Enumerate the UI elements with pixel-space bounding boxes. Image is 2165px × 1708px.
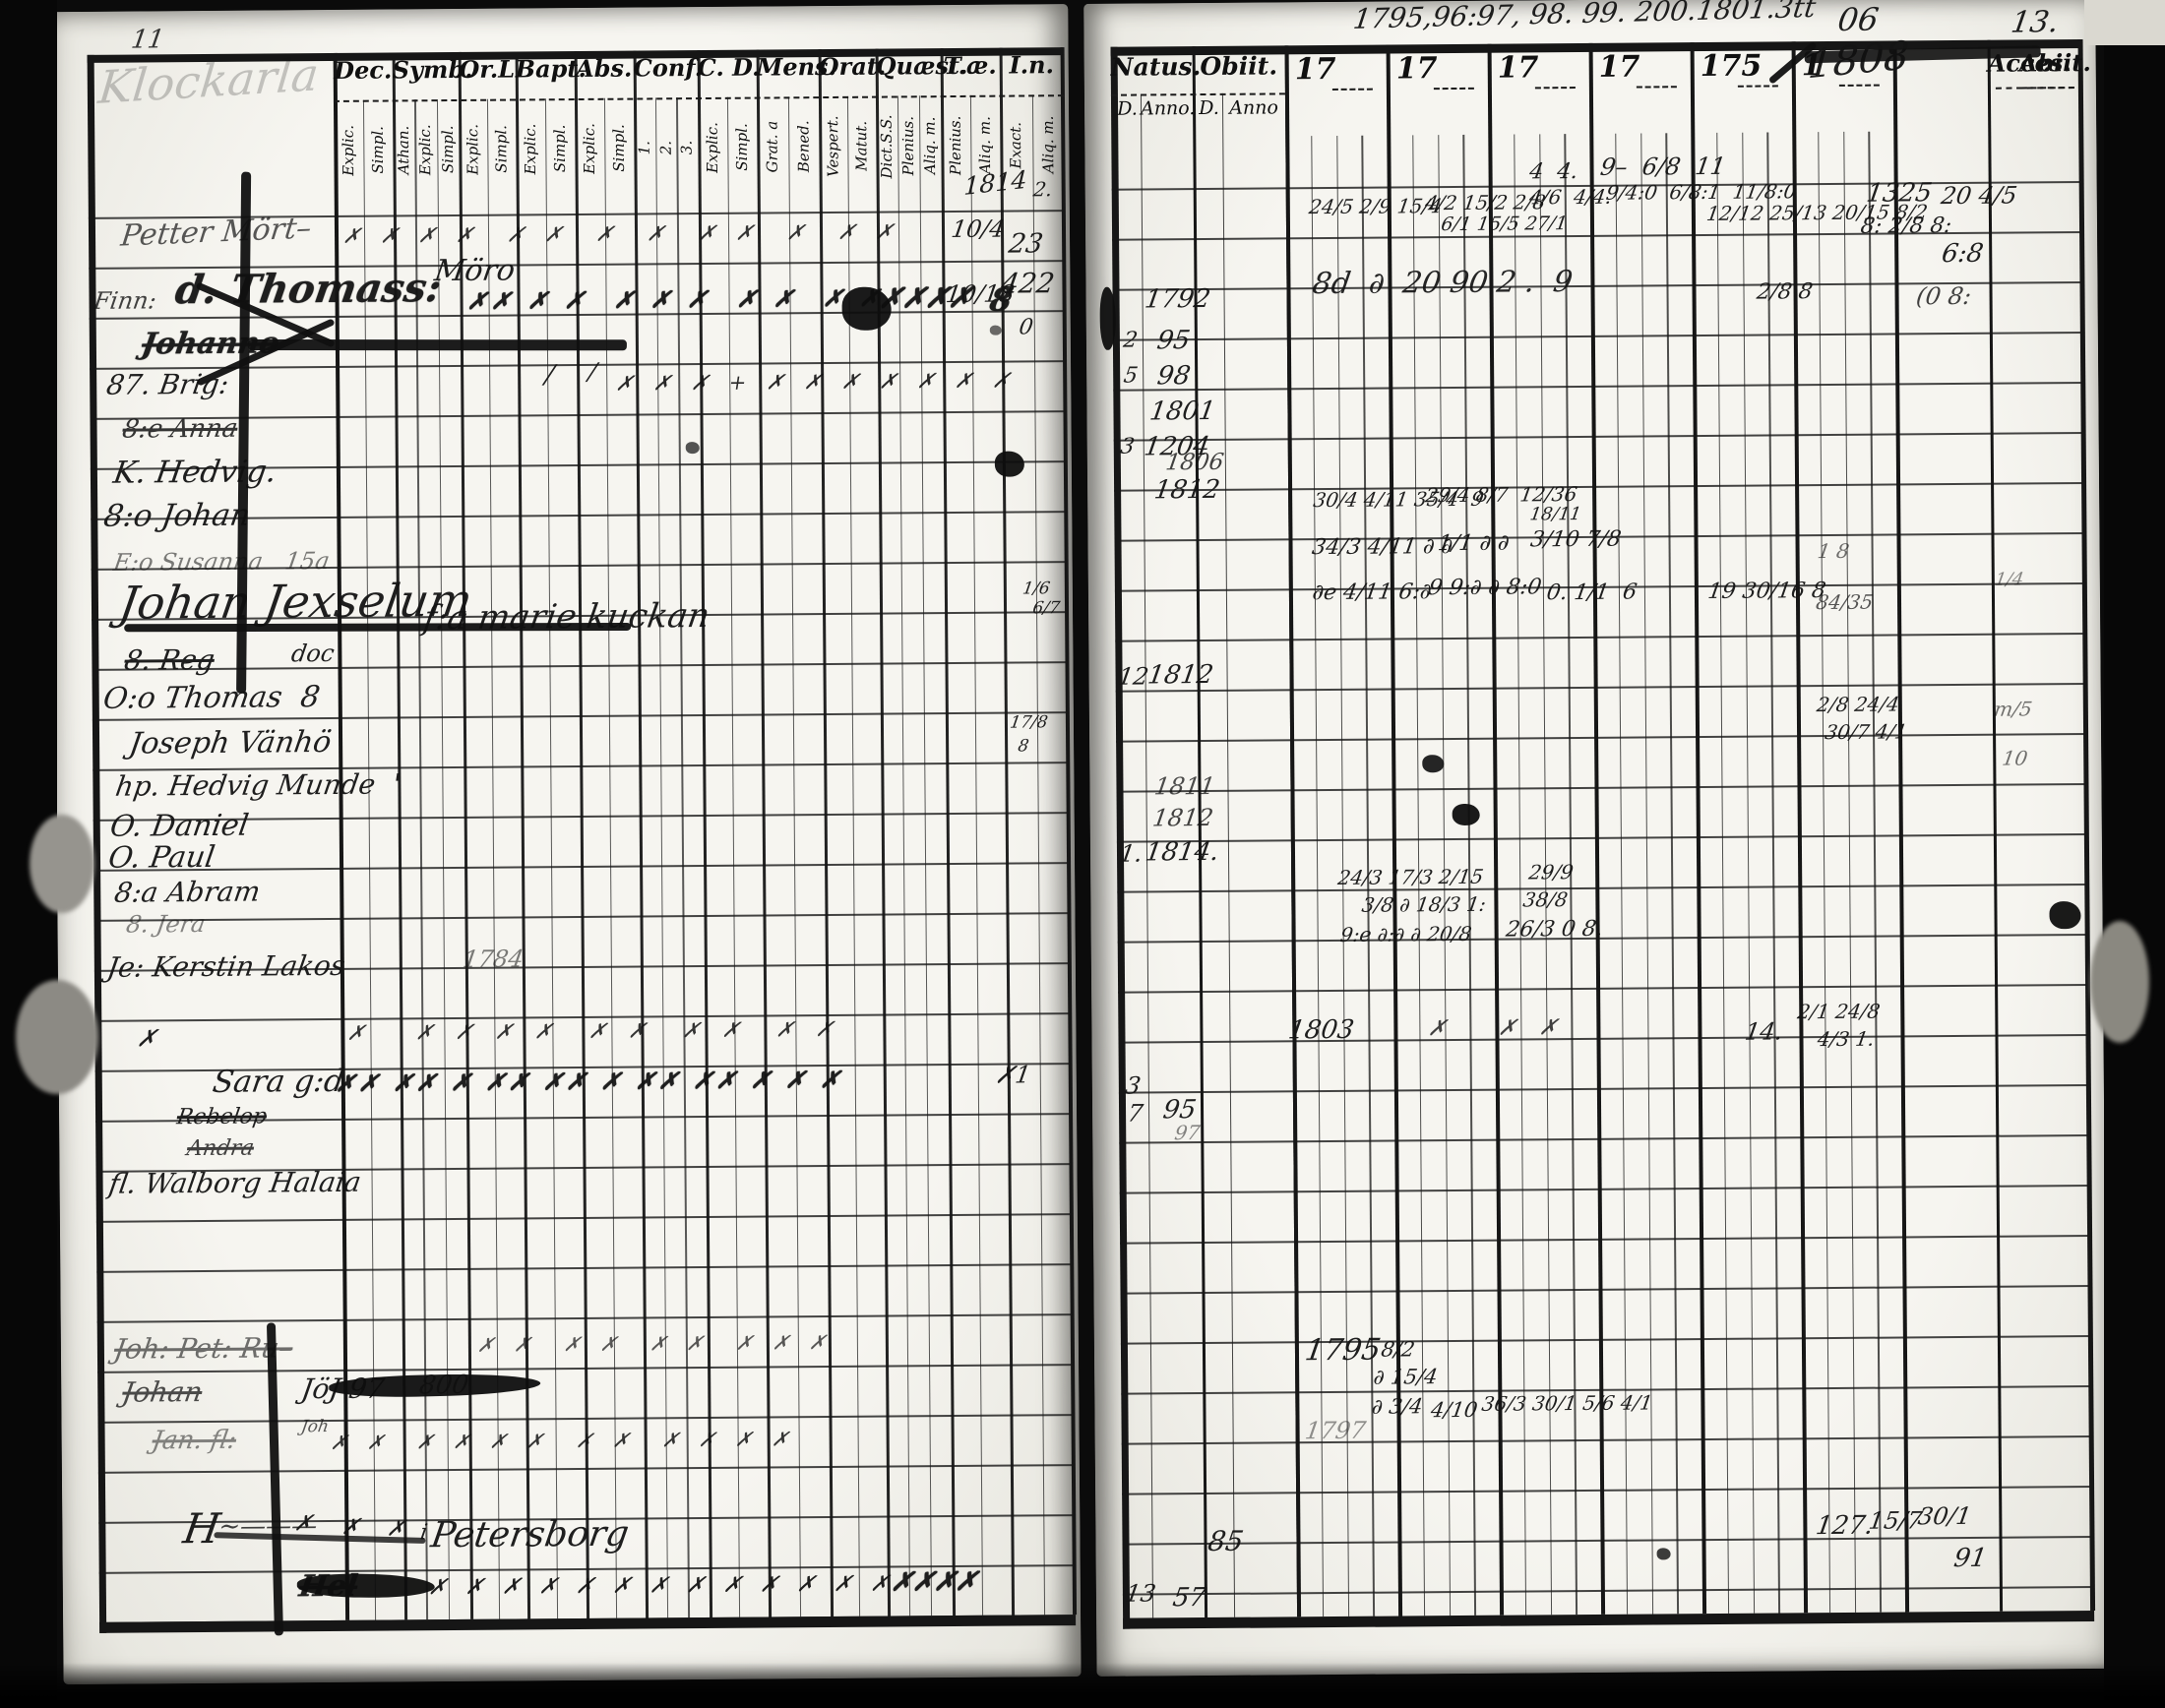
handwritten-entry: 24/3 17/3 2/15 (1336, 867, 1484, 887)
column-header: Bapt. (516, 57, 575, 81)
margin-note: 06 (1835, 4, 1881, 35)
handwritten-entry: Je: Kerstin Lakos (105, 952, 346, 982)
handwritten-entry: 2. (1032, 179, 1054, 199)
handwritten-entry: 38/8 (1521, 889, 1569, 909)
column-header: Symb. (393, 58, 459, 83)
handwritten-entry: Petersborg (429, 1517, 632, 1555)
ink-blot (1453, 804, 1480, 825)
handwritten-entry: O. Paul (106, 843, 216, 874)
handwritten-entry: 8 (1017, 738, 1029, 755)
handwritten-entry: 1811 (1153, 774, 1217, 799)
page-corner (2084, 0, 2165, 45)
column-subheader: Vespert. (819, 100, 848, 193)
handwritten-entry: 1797 (1304, 1419, 1368, 1443)
handwritten-entry: 9– 6/8 11 (1599, 154, 1728, 179)
handwritten-entry: 8/2 (1380, 1339, 1416, 1360)
handwritten-entry: 8:a Abram (112, 879, 262, 907)
column-subheader: 1. (634, 101, 655, 194)
column-subheader: 2. (655, 101, 677, 194)
column-subheader: Explic. (414, 103, 437, 196)
handwritten-entry: 8:e Anna (121, 416, 240, 443)
column-subheader: Explic. (459, 103, 488, 196)
handwritten-entry: 97 (1173, 1123, 1201, 1142)
handwritten-entry: 9:e ∂:∂ ∂ 20/8 (1339, 924, 1473, 945)
handwritten-entry: 2/8 8 (1756, 281, 1815, 303)
year-underline (1434, 88, 1474, 90)
handwritten-entry: 29/9 (1527, 862, 1575, 882)
column-subheader: D. (1114, 100, 1141, 119)
year-header: 17 (1599, 53, 1640, 83)
handwritten-entry: Joh (300, 1419, 331, 1435)
ink-blot (686, 442, 700, 454)
column-subheader: Dict.S.S. (876, 99, 898, 192)
handwritten-entry: 9 9:∂ ∂ 8:0 (1427, 577, 1543, 599)
book-clamp-icon (2090, 921, 2149, 1043)
column-header: Orat. (819, 55, 876, 79)
handwritten-entry: ∂ 3/4 (1371, 1396, 1425, 1417)
handwritten-entry: 4/3 1. (1817, 1029, 1877, 1049)
handwritten-entry: 127. (1814, 1513, 1875, 1539)
column-subheader: Explic. (334, 104, 364, 197)
handwritten-entry: Joseph Vänhö (127, 728, 333, 760)
column-subheader: Bened. (787, 100, 819, 193)
handwritten-entry: Petter Mört– (119, 213, 313, 251)
x-mark-run: ✗ ✗ ✗ ✗ ✗ ✗ ✗ ✗ ✗ ✗ ✗ (345, 1019, 842, 1044)
handwritten-entry: Johan (120, 1378, 204, 1407)
handwritten-entry: 0. 1/1 6 (1545, 582, 1639, 605)
handwritten-entry: ∂ 15/4 (1372, 1367, 1439, 1388)
column-header: Abs. (575, 57, 634, 81)
scan-shadow (0, 1663, 2165, 1708)
handwritten-entry: 34/3 4/11 ∂ ∂ (1311, 536, 1454, 559)
handwritten-entry: 17/8 (1009, 714, 1049, 731)
handwritten-entry: 23 (1007, 230, 1044, 257)
handwritten-entry: 1806 (1164, 452, 1225, 474)
ink-blot (2049, 901, 2080, 929)
column-header: C. D. (698, 56, 757, 80)
handwritten-entry: Johan Jexselum (116, 578, 475, 626)
column-subheader: Simpl. (727, 101, 758, 194)
handwritten-entry: 85 (1206, 1528, 1246, 1555)
column-subheader: Simpl. (487, 103, 517, 196)
handwritten-entry: 1/6 (1021, 580, 1051, 597)
handwritten-entry: 6/7 (1031, 600, 1061, 617)
x-mark-run: ✗ (292, 1513, 314, 1535)
handwritten-entry: 10/4 (950, 217, 1007, 241)
handwritten-entry: 3/8 ∂ 18/3 1: (1360, 894, 1487, 915)
handwritten-entry: H (181, 1508, 223, 1550)
handwritten-entry: 1792 (1144, 286, 1212, 313)
ink-stroke (124, 623, 631, 632)
handwritten-entry: Sara g:d (211, 1067, 346, 1098)
column-header: Or.L (459, 58, 516, 82)
ink-blot (990, 326, 1002, 335)
handwritten-entry: ∂e 4/11 6:∂ (1311, 581, 1433, 604)
ink-blot (1422, 755, 1444, 772)
year-underline (1332, 89, 1373, 91)
year-header: 17 (1396, 54, 1438, 84)
handwritten-entry: Finn: (93, 288, 158, 313)
column-subheader: 3. (676, 101, 698, 194)
handwritten-entry: 91 (1952, 1546, 1989, 1571)
handwritten-entry: 2/1 24/8 (1796, 1002, 1881, 1022)
handwritten-entry: 1795 (1303, 1336, 1383, 1367)
book-clamp-icon (16, 980, 98, 1094)
handwritten-entry: 1814. (1144, 839, 1220, 866)
ink-blot (995, 451, 1024, 476)
handwritten-entry: 18/11 (1528, 506, 1582, 523)
column-subheader: Simpl. (437, 103, 460, 196)
handwritten-entry: 57 (1171, 1585, 1207, 1611)
year-underline (1637, 86, 1677, 88)
handwritten-entry: 1/4 (1994, 571, 2025, 588)
handwritten-entry: 1784 (462, 946, 526, 971)
handwritten-entry: Möro (432, 256, 517, 286)
column-subheader: Anno. (1141, 99, 1193, 118)
x-mark-run: ✗ ✗ ✗ (1426, 1017, 1567, 1040)
handwritten-entry: Rebelop (175, 1107, 268, 1129)
handwritten-entry: 1801 (1148, 398, 1217, 425)
handwritten-entry: 1/1 ∂ ∂ (1437, 533, 1511, 556)
x-mark-run: ✗ ✗ ✗ ✗ ✗ ✗ ✗ ✗ ✗ ✗ ✗ ✗ (330, 1429, 797, 1452)
handwritten-entry: 1803 (1287, 1017, 1356, 1044)
handwritten-entry: O:o Thomas 8 (101, 683, 322, 714)
handwritten-entry: E:o Susanna 15a (112, 549, 332, 575)
handwritten-entry: 3/10 7/8 (1529, 529, 1623, 552)
handwritten-entry: 1325 (1865, 180, 1934, 207)
handwritten-entry: 26/3 0 8. (1505, 919, 1605, 942)
handwritten-entry: 6:8 (1940, 241, 1985, 267)
handwritten-entry: 19 30/16 8 (1706, 580, 1827, 603)
handwritten-entry: fl. Walborg Halaia (107, 1169, 363, 1198)
handwritten-entry: 20 4/5 (1940, 184, 2018, 209)
handwritten-entry: 8d ∂ 20 90 2 . 9 (1311, 268, 1575, 299)
handwritten-entry: 95 (1161, 1097, 1198, 1123)
column-subheader: Aliq. m. (919, 99, 942, 192)
book-spread: Dec.Explic.Simpl.Symb.Athan.Explic.Simpl… (0, 0, 2165, 1708)
ink-blot (841, 287, 891, 331)
year-underline (1839, 85, 1880, 87)
handwritten-entry: 10 (2001, 748, 2028, 767)
column-header: T.æ. (941, 54, 1000, 78)
handwritten-entry: m/5 (1993, 699, 2033, 718)
faint-heading: Klockarla (96, 52, 321, 110)
x-mark-run: ✗ ✗ ✗ ✗ ✗ ✗ ✗ ✗ ✗ ✗ ✗ ✗ ✗ (341, 221, 901, 246)
handwritten-entry: 8: 2/8 8: (1859, 215, 1953, 238)
scanner-edge-right (2104, 0, 2165, 1708)
year-header: 17 (1498, 53, 1539, 83)
handwritten-entry: K. Hedvig. (111, 457, 278, 488)
ink-blot (1657, 1548, 1671, 1559)
handwritten-entry: 8. Reg (123, 646, 216, 675)
margin-note: 13. (2010, 8, 2061, 37)
column-header: Quæst. (876, 54, 941, 79)
handwritten-entry: 1814 (963, 167, 1027, 199)
x-mark-run: ✗ ✗ ✗ + ✗ ✗ ✗ ✗ ✗ ✗ ✗ (614, 370, 1018, 394)
year-header: 175 (1701, 52, 1763, 82)
handwritten-entry: (0 8: (1915, 284, 1973, 308)
column-subheader: Simpl. (545, 102, 576, 195)
handwritten-entry: 4/10 (1430, 1400, 1479, 1421)
handwritten-entry: 30/1 (1916, 1504, 1973, 1528)
column-subheader: Anno (1222, 98, 1285, 118)
column-subheader: Explic. (698, 101, 728, 194)
handwritten-entry: 1 8 (1817, 541, 1851, 561)
handwritten-entry: Andra (185, 1138, 255, 1161)
handwritten-entry: 9/4:0 6/8:1 11/8:0 (1605, 181, 1798, 203)
handwritten-entry: 1. (1118, 842, 1144, 866)
column-header: Dec. (334, 58, 393, 82)
column-header: Conf. (634, 56, 698, 81)
column-header: Natus. (1111, 54, 1193, 80)
x-mark-run: ✗✗ ✗ ✗ ✗ ✗ ✗ ✗ ✗ ✗ ✗ (466, 287, 887, 313)
handwritten-entry: 12 (1117, 664, 1150, 688)
handwritten-entry: 84/35 (1815, 592, 1875, 612)
x-mark-run: ✗ ✗ ✗ ✗ ✗ ✗ ✗ ✗ ✗ ✗ ✗ ✗ ✗ (427, 1574, 897, 1600)
year-underline (1535, 87, 1576, 89)
handwritten-entry: hp. Hedvig Munde ' (114, 770, 402, 800)
margin-note: 11 (130, 27, 166, 52)
book-clamp-icon (30, 815, 94, 913)
column-header: I.n. (1000, 53, 1064, 78)
column-subheader: Plenius. (897, 99, 920, 192)
x-mark-run: ✗✗✗✗ (890, 1569, 979, 1596)
handwritten-entry: 4/6 4/4. (1528, 187, 1613, 208)
handwritten-entry: Jan. fl: (151, 1428, 238, 1454)
column-header: Obiit. (1193, 53, 1285, 79)
column-header: Mens. (757, 55, 819, 79)
column-subheader: Simpl. (604, 102, 635, 195)
handwritten-entry: 1812 (1152, 477, 1221, 504)
handwritten-entry: 8. Jera (125, 912, 208, 937)
column-subheader: D. (1196, 99, 1222, 118)
column-subheader: Simpl. (363, 103, 394, 196)
column-subheader: Explic. (516, 102, 546, 195)
handwritten-entry: 29/4 8/7 12/36 (1424, 484, 1578, 505)
x-mark-run: ✗ ✗ ✗ ✗ ✗ ✗ ✗ ✗ ✗ (476, 1332, 835, 1355)
handwritten-entry: 1812 (1146, 662, 1215, 689)
year-header: 17 (1295, 55, 1336, 85)
handwritten-entry: doc (289, 641, 336, 665)
handwritten-entry: 30/7 4/1 (1824, 721, 1908, 742)
year-underline (1738, 85, 1778, 87)
handwritten-entry: 13 (1124, 1581, 1157, 1605)
column-subheader: Grat. a (757, 100, 788, 193)
x-mark-run: ✗ (136, 1026, 159, 1050)
column-subheader: Matut. (847, 100, 877, 193)
header-divider (2021, 87, 2074, 89)
handwritten-entry: 6/1 15/5 27/1 (1440, 214, 1569, 234)
column-subheader: Athan. (393, 103, 415, 196)
handwritten-entry: 14. (1744, 1019, 1785, 1043)
x-mark-run: ✗1 (994, 1063, 1032, 1086)
x-mark-run: ✗✗ ✗✗ ✗ ✗✗ ✗✗ ✗ ✗✗ ✗✗ ✗ ✗ ✗ (335, 1068, 845, 1095)
handwritten-entry: 2/8 24/4 (1816, 694, 1900, 714)
document-scan: Dec.Explic.Simpl.Symb.Athan.Explic.Simpl… (0, 0, 2165, 1708)
column-subheader: Explic. (575, 102, 605, 195)
handwritten-entry: 98 (1155, 363, 1192, 389)
handwritten-entry: 8:o Johan (101, 501, 252, 532)
handwritten-entry: 4 4. (1528, 161, 1579, 183)
handwritten-entry: O. Daniel (108, 812, 251, 842)
handwritten-entry: 95 (1155, 328, 1192, 353)
ink-stroke (248, 339, 627, 350)
handwritten-entry: 1812 (1151, 806, 1215, 830)
handwritten-entry: 36/3 30/1 5/6 4/1 (1480, 1392, 1653, 1413)
